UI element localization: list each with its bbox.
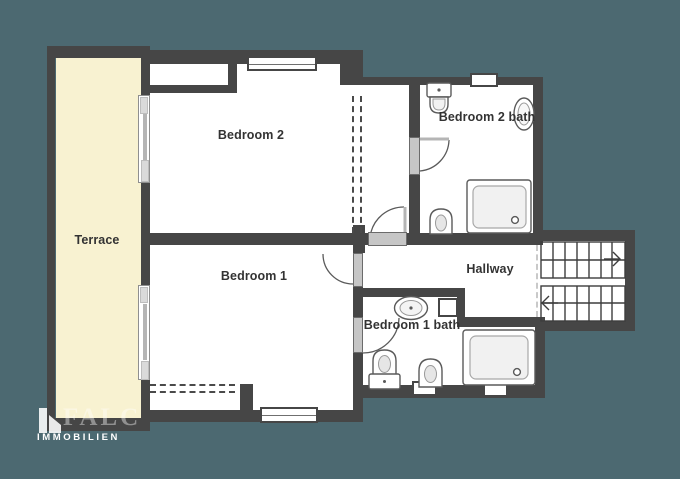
terrace-window (138, 95, 150, 183)
wall (363, 288, 465, 297)
wall (47, 46, 150, 58)
dashed-partition (150, 384, 235, 393)
stairwell (538, 241, 625, 321)
window (470, 73, 498, 87)
wall (353, 287, 363, 297)
wall (363, 77, 543, 85)
wall (540, 230, 635, 241)
room-label-bedroom-1-bath: Bedroom 1 bath (364, 318, 461, 332)
wall (143, 410, 363, 422)
wall (625, 230, 635, 331)
wall (228, 64, 237, 93)
room-bedroom-1-bath (363, 297, 535, 385)
door-bedroom-2-bath (409, 137, 420, 175)
room-label-bedroom-1: Bedroom 1 (221, 269, 287, 283)
room-label-bedroom-2-bath: Bedroom 2 bath (439, 110, 536, 124)
room-label-hallway: Hallway (466, 262, 513, 276)
wall (409, 85, 420, 137)
window (483, 383, 508, 397)
wall (47, 46, 55, 431)
wall (457, 317, 545, 327)
door-bedroom-1-bath (353, 317, 363, 353)
window (412, 381, 437, 396)
door-hallway-vestibule (368, 232, 407, 246)
wall (340, 64, 363, 85)
window (260, 407, 318, 423)
niche-bedroom-2 (150, 64, 228, 85)
wall (143, 85, 237, 93)
stairs-open-edge (536, 245, 538, 317)
dashed-partition (352, 96, 362, 233)
wall (538, 321, 635, 331)
wall (533, 77, 543, 245)
wall (353, 353, 363, 410)
room-label-terrace: Terrace (75, 233, 120, 247)
window (247, 56, 317, 71)
door-bedroom-1 (353, 253, 363, 287)
wall (353, 385, 545, 398)
wall (409, 175, 420, 233)
room-bedroom-2-bath (363, 85, 533, 233)
wall (353, 297, 363, 317)
falc-logo-subtitle: IMMOBILIEN (37, 432, 120, 443)
room-label-bedroom-2: Bedroom 2 (218, 128, 284, 142)
falc-logo-brand: FALC (63, 404, 141, 432)
falc-logo: FALC IMMOBILIEN (36, 404, 156, 448)
wall (143, 233, 543, 245)
wall (240, 384, 253, 422)
terrace-window (138, 285, 150, 380)
floor-plan: Terrace Bedroom 2 Bedroom 2 bath Bedroom… (0, 0, 680, 479)
